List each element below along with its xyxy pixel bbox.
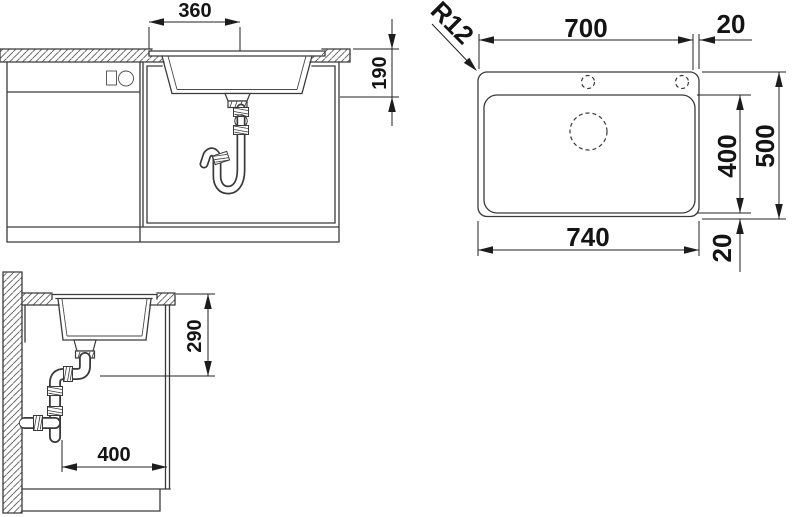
dim-top-width-700: 700 — [479, 13, 693, 70]
dim-label-500: 500 — [750, 124, 780, 167]
dim-label-290: 290 — [184, 319, 206, 352]
dim-top-gap-20: 20 — [699, 9, 752, 69]
sink-bowl-side — [52, 295, 157, 341]
drain-trap-front — [204, 94, 250, 191]
dim-label-190: 190 — [369, 56, 391, 89]
dim-corner-radius-r12: R12 — [425, 0, 480, 74]
tap-hole-right — [676, 76, 689, 89]
dim-front-width-360: 360 — [149, 0, 240, 51]
front-view: 360 190 — [0, 0, 399, 242]
tap-hole-left — [582, 76, 595, 89]
technical-drawing-sink-installation: 360 190 700 20 — [0, 0, 800, 517]
sink-outline-top — [478, 72, 699, 217]
drawing-canvas: 360 190 700 20 — [0, 0, 800, 517]
dishwasher-button-icon — [107, 71, 117, 85]
dim-label-400-side: 400 — [97, 444, 130, 466]
drain-hole-circle — [570, 113, 607, 150]
sink-bowl-front — [149, 51, 325, 94]
dim-front-depth-190: 190 — [340, 19, 399, 126]
side-view: 290 400 — [3, 272, 215, 513]
wall-section — [3, 272, 22, 513]
base-cabinet — [7, 62, 339, 242]
dim-label-20-bottom: 20 — [707, 234, 737, 263]
dim-side-height-290: 290 — [100, 294, 215, 376]
dim-top-bowl-400: 400 — [697, 95, 751, 213]
dim-label-700: 700 — [564, 13, 607, 43]
drain-trap-side — [24, 340, 96, 437]
dim-label-360: 360 — [178, 0, 211, 22]
dim-label-20-top: 20 — [717, 9, 746, 39]
top-view: 700 20 R12 400 500 — [425, 0, 786, 272]
dishwasher-knob-icon — [119, 71, 134, 86]
dim-side-clearance-400: 400 — [62, 440, 167, 472]
dim-top-overall-740: 740 — [478, 221, 699, 256]
dim-label-740: 740 — [566, 222, 609, 252]
dim-label-400-top: 400 — [712, 134, 742, 177]
